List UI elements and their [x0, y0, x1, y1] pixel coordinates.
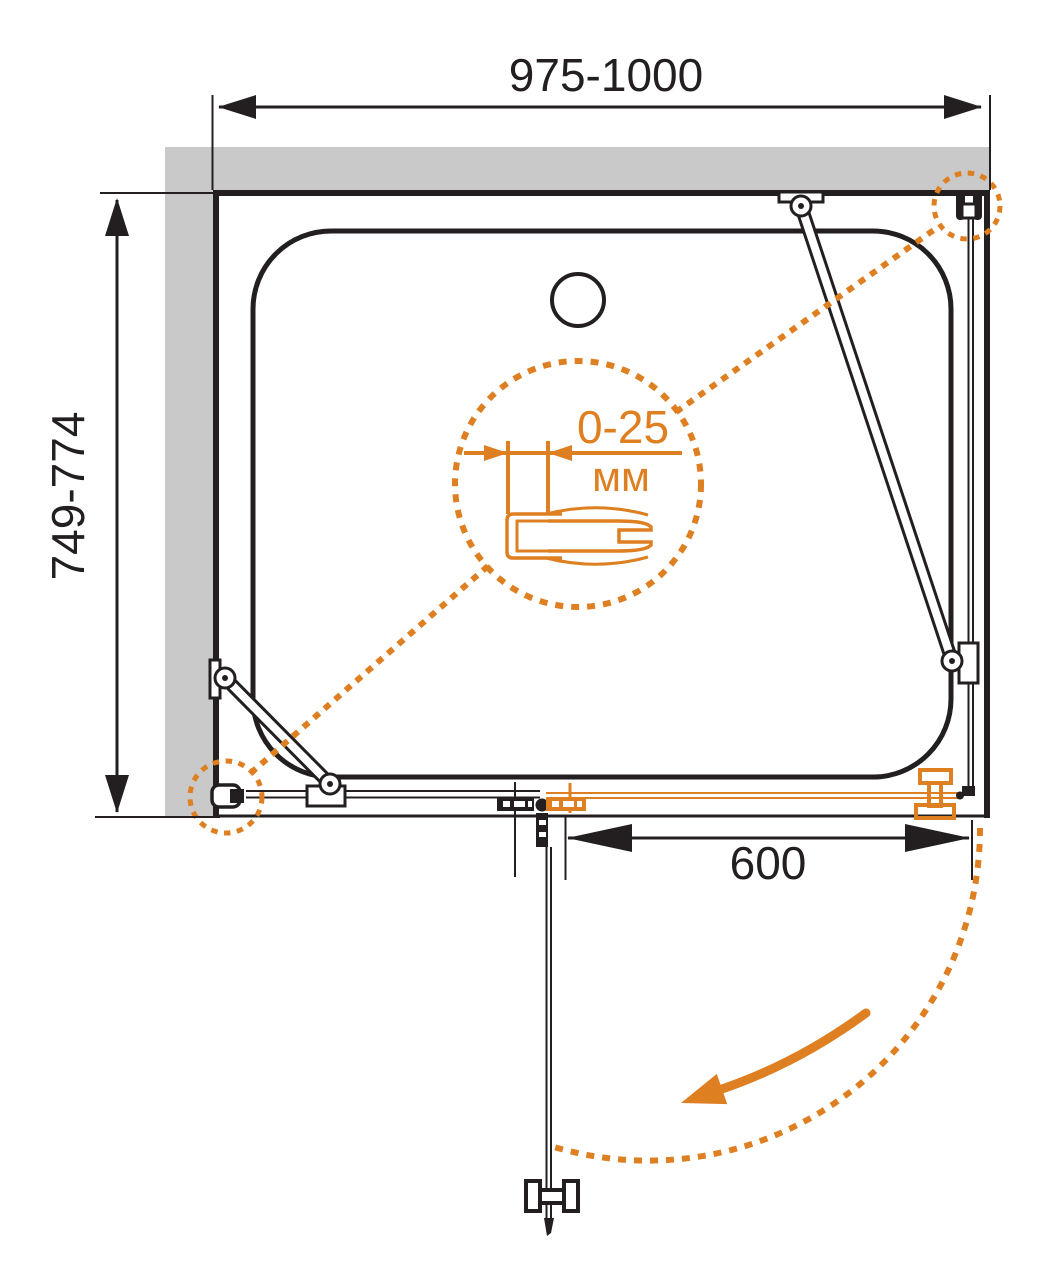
door-handle-knob — [526, 1181, 540, 1211]
door-panel-open — [526, 847, 578, 1236]
diagram-canvas: 0-25 мм 975-1000 749-774 600 — [0, 0, 1063, 1287]
rail-end-pin — [956, 792, 964, 800]
right-glass-end-cap — [962, 786, 975, 796]
detail-arrow — [548, 445, 572, 461]
dim-arrow-top — [105, 198, 129, 236]
walls — [165, 147, 990, 818]
door-width-label: 600 — [730, 837, 807, 889]
center-hinge-assembly — [497, 782, 549, 877]
bracket-slot — [563, 801, 574, 807]
bracket-slot — [552, 801, 559, 807]
wall-profile-clamp-top-right — [956, 192, 982, 220]
arm-bar — [221, 674, 334, 788]
wall-channel-inner — [517, 521, 562, 551]
rail-clamp-bottom-flange — [916, 805, 954, 818]
enclosure-frame — [213, 190, 990, 818]
bracket-slot — [528, 801, 532, 807]
dimension-door: 600 — [566, 815, 973, 889]
dim-arrow-bottom — [105, 775, 129, 813]
wall-top — [165, 147, 990, 191]
detail-profile-drawing: 0-25 мм — [464, 401, 682, 564]
fixed-panel-left — [246, 791, 540, 798]
clamp-center — [962, 204, 976, 218]
arm-pivot-upper-pin — [222, 675, 228, 681]
swing-arrow-head — [681, 1074, 727, 1104]
drain — [552, 274, 604, 326]
swing-arrow-shaft — [722, 1013, 866, 1089]
bracket-slot — [514, 801, 525, 807]
detail-circle — [455, 361, 701, 607]
adjustment-range-label: 0-25 — [577, 401, 669, 453]
adjustment-unit-label: мм — [592, 453, 650, 500]
detail-arrow — [484, 445, 508, 461]
door-handle-knob — [564, 1181, 578, 1211]
wall-left — [165, 191, 213, 818]
detail-callout: 0-25 мм — [190, 173, 1000, 833]
clamp-jaw — [230, 789, 244, 803]
hinge-slot — [539, 820, 546, 825]
hinge-body — [536, 813, 548, 847]
dim-arrow-right — [944, 95, 982, 119]
dim-arrow-left — [567, 824, 632, 852]
depth-dimension-label: 749-774 — [42, 412, 94, 581]
bracket-slot — [503, 801, 510, 807]
brace-pivot-upper-pin — [798, 203, 804, 209]
door-glass-tip — [544, 1218, 554, 1236]
support-brace-right — [779, 192, 978, 683]
fixed-panel-right — [962, 216, 975, 796]
width-dimension-label: 975-1000 — [509, 49, 703, 101]
glass-profile-fork — [548, 521, 651, 551]
bracket-slot — [577, 801, 582, 807]
dim-arrow-right — [905, 824, 970, 852]
arm-pivot-lower-pin — [327, 781, 333, 787]
brace-pivot-lower-pin — [949, 658, 955, 664]
dim-arrow-left — [218, 95, 256, 119]
callout-leader-top-right — [676, 227, 938, 412]
callout-leader-bottom-left — [252, 566, 488, 772]
shower-enclosure-plan-diagram: 0-25 мм 975-1000 749-774 600 — [0, 0, 1063, 1287]
rail-clamp-stem — [929, 783, 941, 806]
hinge-slot — [539, 832, 546, 837]
wall-profile-clamp-left — [212, 785, 244, 807]
door-handle-bar — [538, 1190, 566, 1203]
